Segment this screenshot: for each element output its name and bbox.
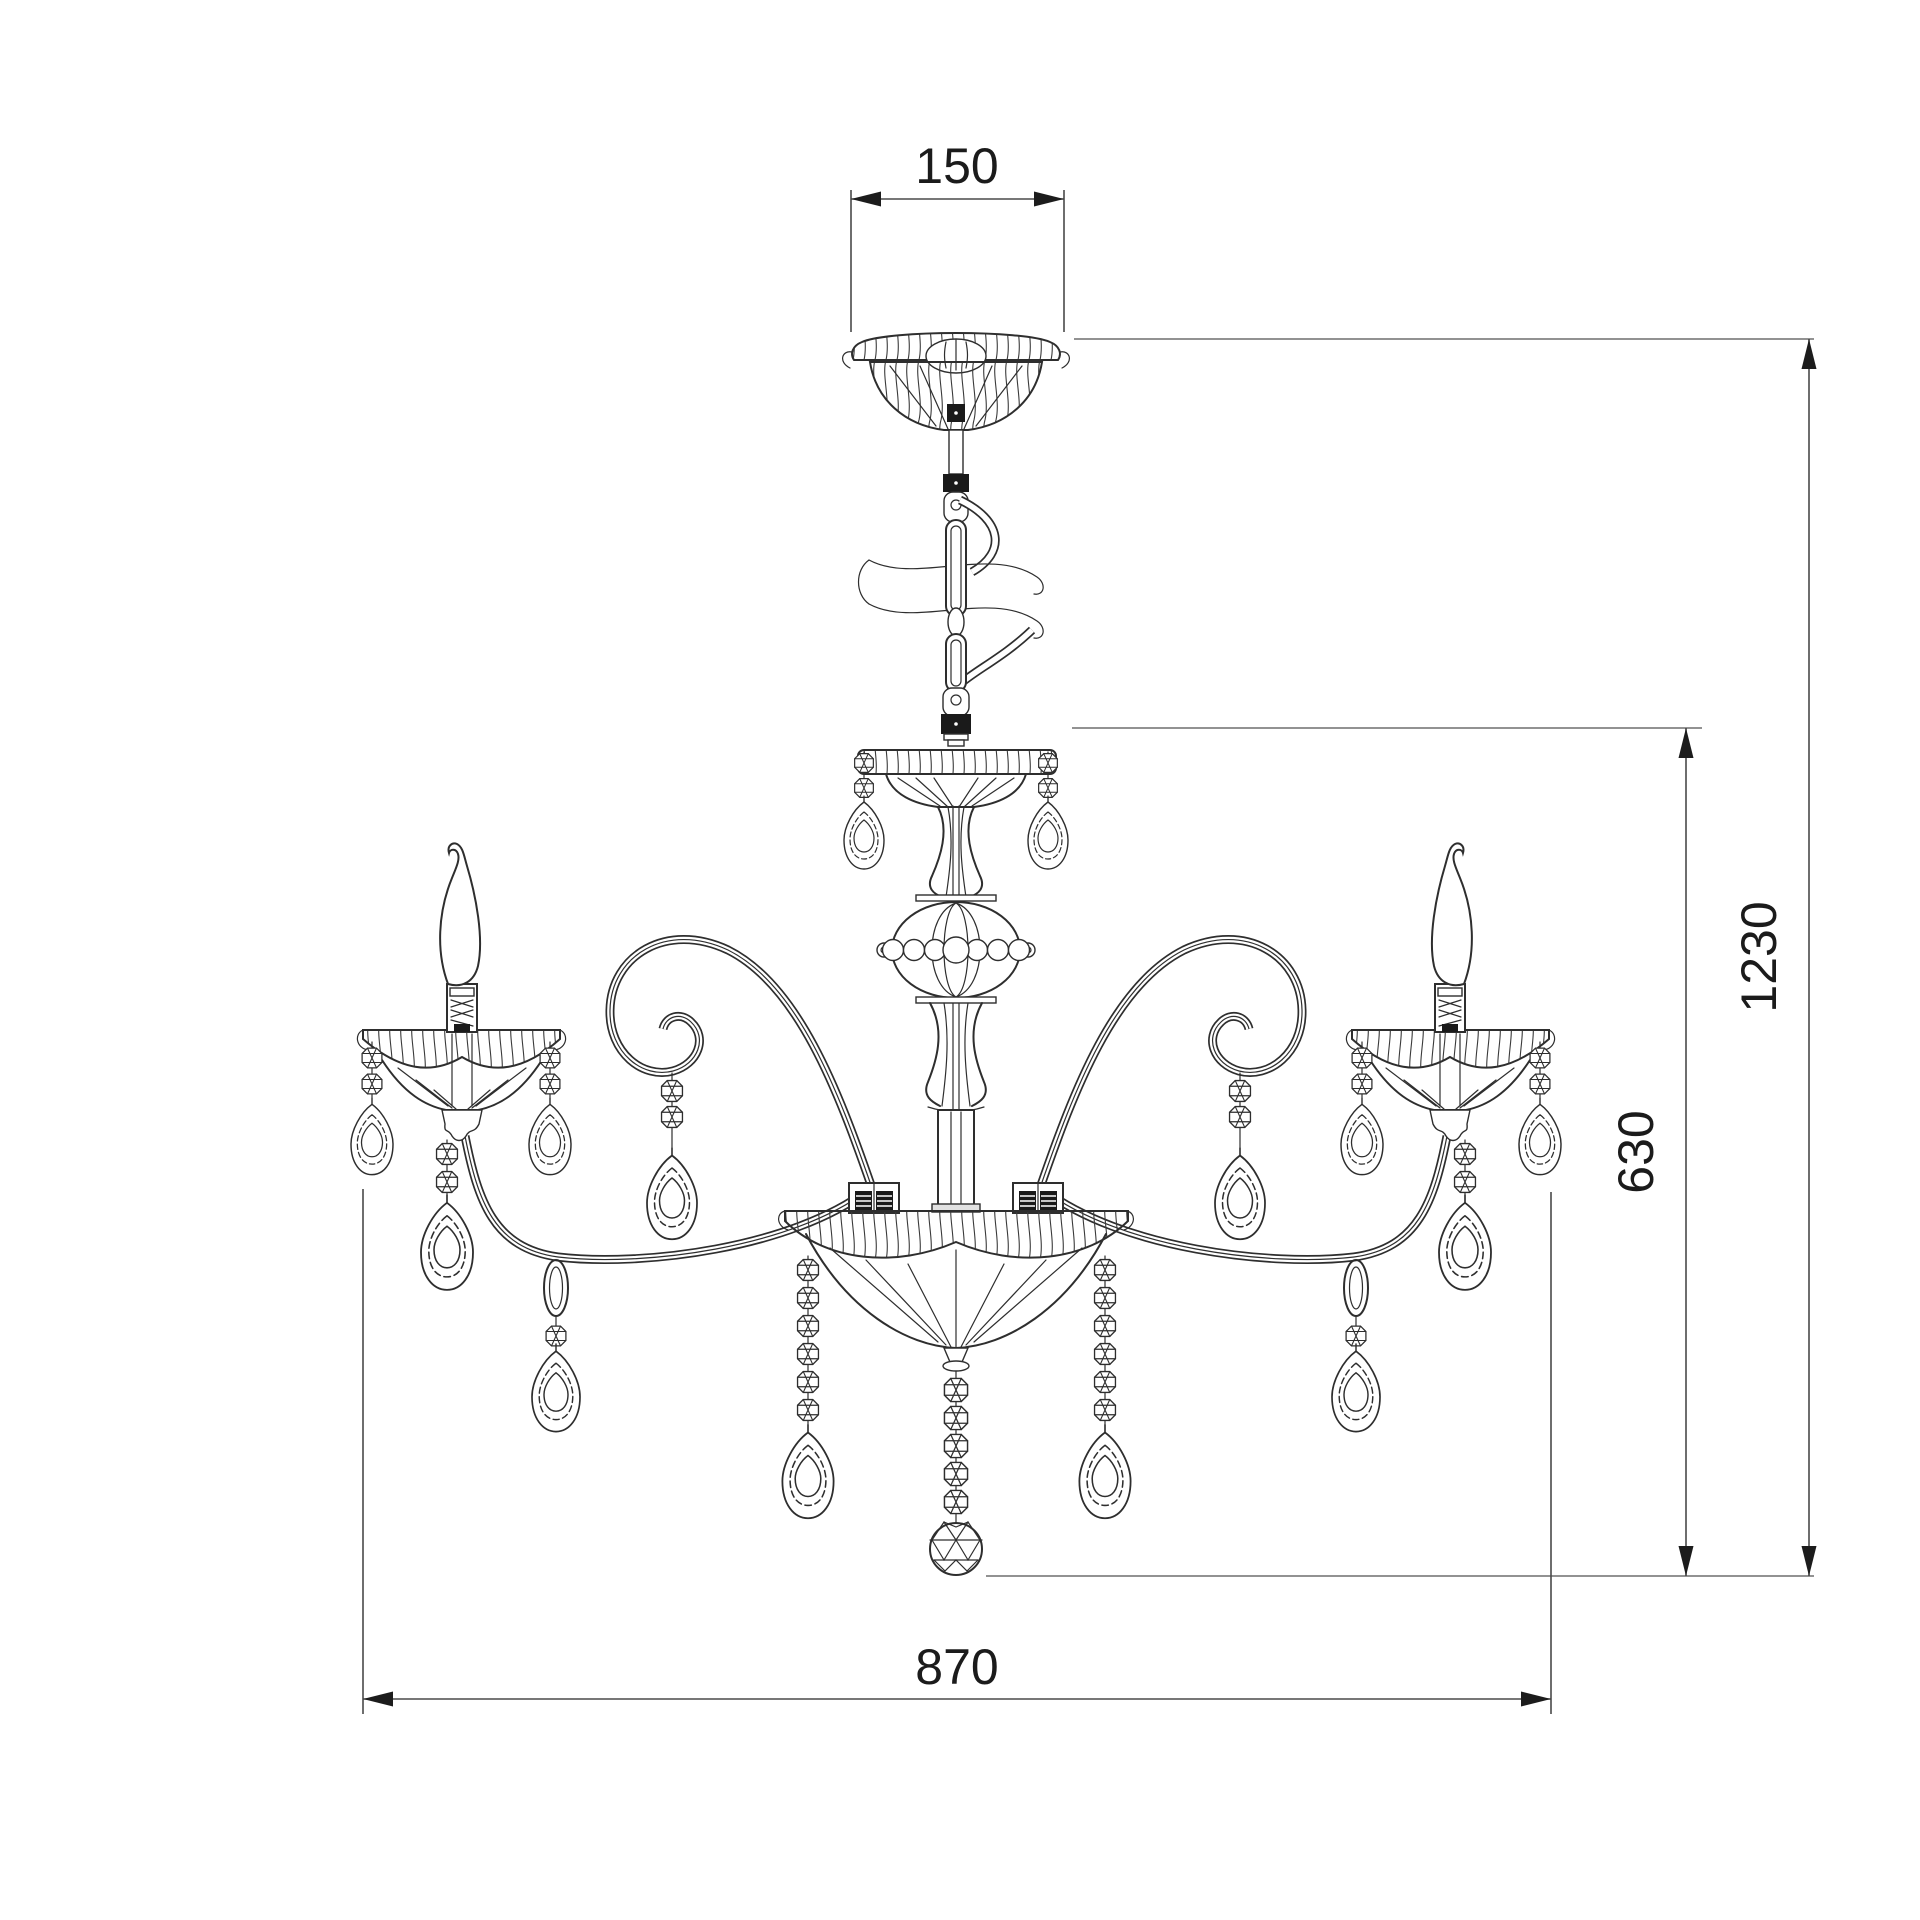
center-bowl <box>779 1211 1134 1371</box>
suspension-chain-assembly <box>859 430 1044 746</box>
ceiling-canopy <box>843 333 1070 430</box>
left-side-assembly <box>351 843 899 1431</box>
arrow-left-icon <box>363 1692 393 1707</box>
arrow-down-icon <box>1802 1546 1817 1576</box>
dimension-label: 870 <box>915 1639 998 1695</box>
arrow-up-icon <box>1679 728 1694 758</box>
arrow-up-icon <box>1802 339 1817 369</box>
center-bead-strand <box>944 1378 967 1513</box>
bowl-strand-right <box>1079 1256 1130 1518</box>
arrow-down-icon <box>1679 1546 1694 1576</box>
bowl-strand-left <box>782 1256 833 1518</box>
canopy-neck <box>949 430 963 474</box>
dimension-label: 150 <box>915 138 998 194</box>
chandelier-dimension-drawing: 150 1230 630 870 <box>0 0 1920 1920</box>
melon-element <box>877 902 1035 998</box>
right-side-assembly <box>1013 843 1561 1431</box>
arrow-right-icon <box>1521 1692 1551 1707</box>
arrow-left-icon <box>851 192 881 207</box>
dimension-label: 1230 <box>1731 901 1787 1012</box>
upper-cup <box>886 774 1026 807</box>
extension-line <box>851 190 1064 332</box>
dim-canopy-width: 150 <box>851 138 1064 332</box>
dim-body-height: 630 <box>1608 728 1694 1576</box>
center-column <box>877 807 1035 1212</box>
top-plate <box>858 750 1056 774</box>
drawing-svg: 150 1230 630 870 <box>0 0 1920 1920</box>
dim-overall-height: 1230 <box>1731 339 1817 1576</box>
dimension-label: 630 <box>1608 1110 1664 1193</box>
arrow-right-icon <box>1034 192 1064 207</box>
crystal-ball <box>930 1522 982 1575</box>
chain-links <box>946 520 966 692</box>
